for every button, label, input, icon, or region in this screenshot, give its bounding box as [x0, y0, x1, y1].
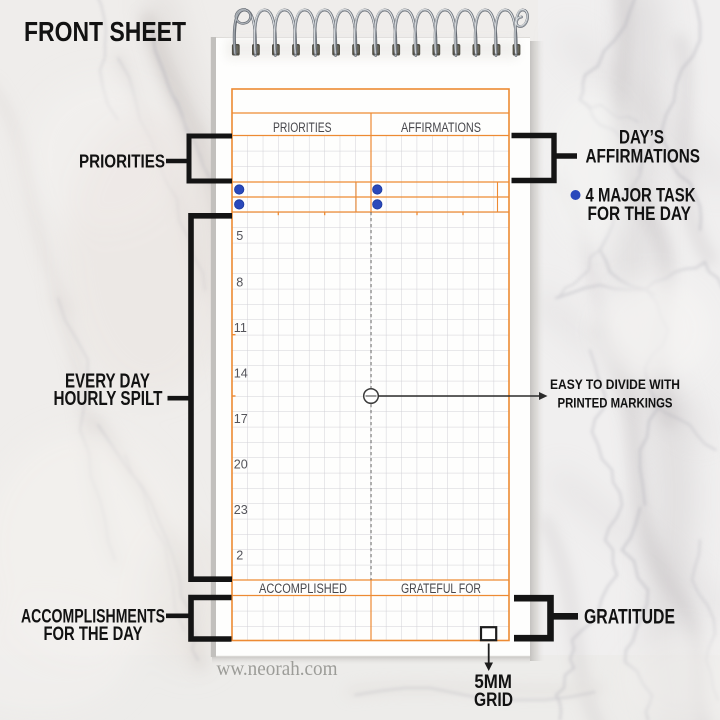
- svg-text:FRONT SHEET: FRONT SHEET: [24, 16, 186, 47]
- svg-text:5: 5: [236, 229, 243, 243]
- svg-text:14: 14: [234, 366, 248, 380]
- svg-text:PRIORITIES: PRIORITIES: [273, 120, 332, 135]
- svg-text:PRINTED MARKINGS: PRINTED MARKINGS: [558, 394, 673, 410]
- svg-text:20: 20: [234, 457, 248, 471]
- svg-text:8: 8: [236, 275, 243, 289]
- svg-text:FOR THE DAY: FOR THE DAY: [44, 624, 143, 645]
- svg-text:EASY TO DIVIDE WITH: EASY TO DIVIDE WITH: [550, 376, 680, 392]
- svg-text:2: 2: [236, 548, 243, 562]
- svg-text:GRID: GRID: [474, 690, 513, 711]
- svg-text:FOR THE DAY: FOR THE DAY: [588, 204, 692, 225]
- svg-text:AFFIRMATIONS: AFFIRMATIONS: [586, 147, 701, 168]
- svg-text:AFFIRMATIONS: AFFIRMATIONS: [401, 120, 481, 135]
- svg-text:GRATITUDE: GRATITUDE: [584, 606, 675, 629]
- svg-text:11: 11: [234, 321, 247, 335]
- svg-text:DAY’S: DAY’S: [619, 128, 664, 149]
- svg-text:23: 23: [234, 503, 248, 517]
- svg-text:ww.neorah.com: ww.neorah.com: [217, 659, 338, 680]
- svg-text:17: 17: [234, 412, 248, 426]
- svg-text:ACCOMPLISHED: ACCOMPLISHED: [259, 581, 347, 596]
- svg-text:PRIORITIES: PRIORITIES: [79, 152, 165, 172]
- svg-text:GRATEFUL FOR: GRATEFUL FOR: [401, 581, 481, 596]
- svg-text:HOURLY SPILT: HOURLY SPILT: [54, 388, 163, 410]
